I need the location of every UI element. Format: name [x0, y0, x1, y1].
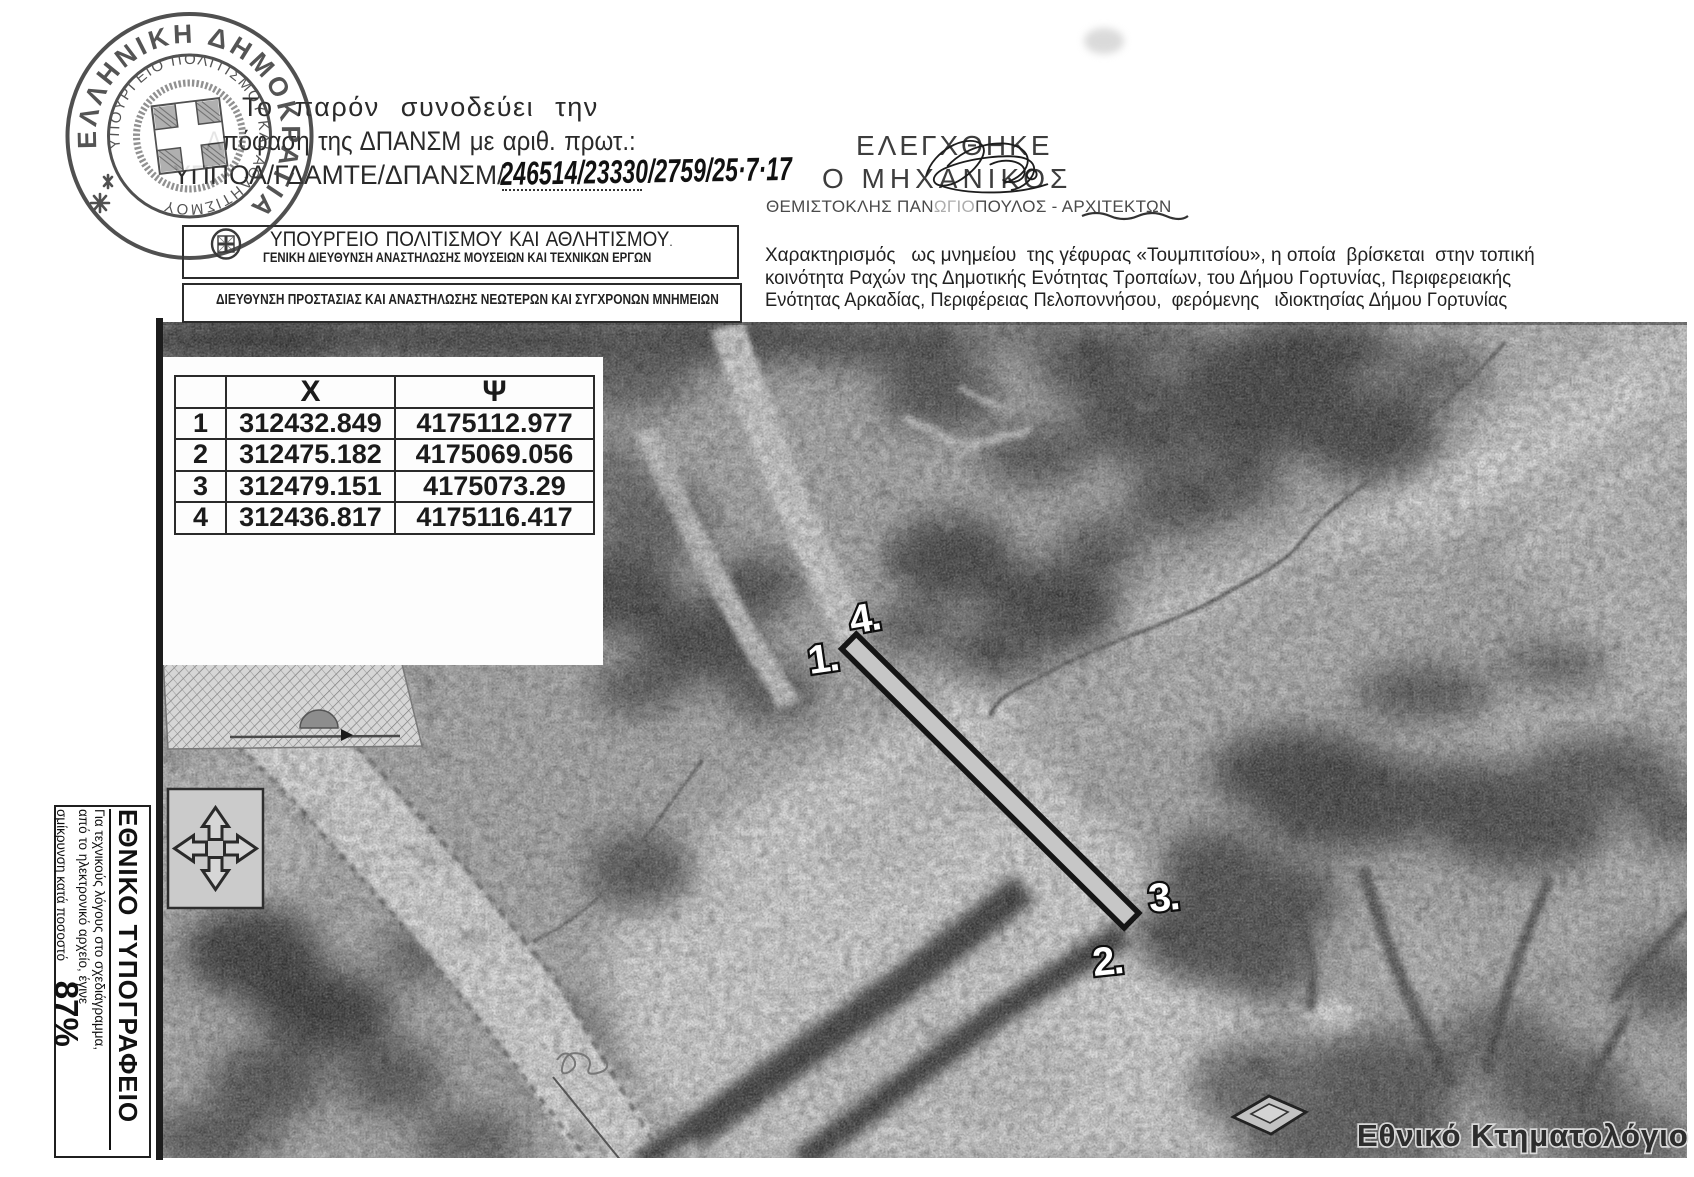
svg-text:Εθνικό Κτηματολόγιο: Εθνικό Κτηματολόγιο: [1357, 1118, 1689, 1153]
svg-text:3.: 3.: [1146, 874, 1180, 921]
svg-text:2.: 2.: [1090, 938, 1124, 985]
svg-text:1.: 1.: [805, 635, 840, 683]
